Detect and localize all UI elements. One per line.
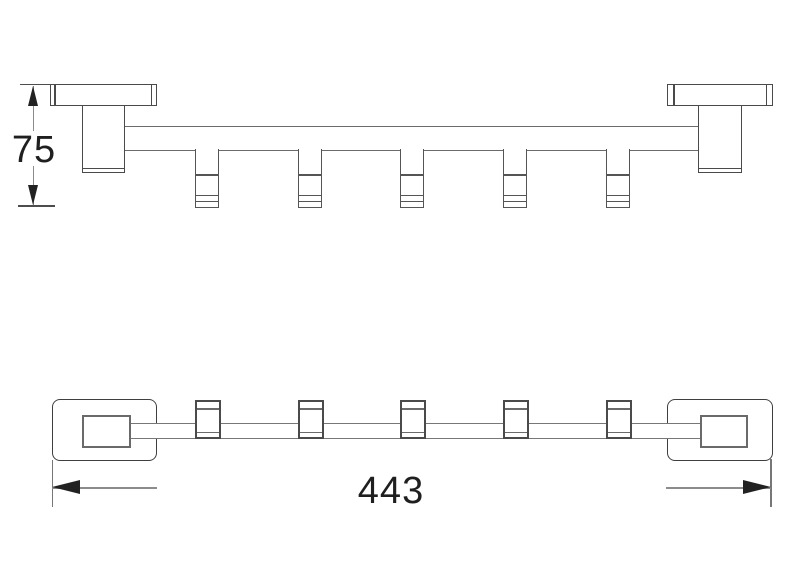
hook-plan-1 — [195, 400, 221, 439]
hook-tip-band — [607, 195, 629, 202]
hook-front-5 — [606, 149, 630, 208]
hook-tip-band — [299, 195, 321, 202]
plate-edge-line — [673, 85, 675, 105]
hook-detail-line — [608, 432, 630, 434]
hook-front-1 — [195, 149, 219, 208]
hook-tip-band — [401, 195, 423, 202]
post-base-line — [699, 168, 741, 170]
technical-drawing-sheet: 75 — [0, 0, 800, 582]
post-base-line — [83, 168, 124, 170]
arrow-up-icon — [28, 86, 38, 106]
hook-detail-line — [505, 408, 527, 410]
hook-detail-line — [300, 408, 322, 410]
hook-tip-band — [196, 195, 218, 202]
arrow-right-icon — [743, 480, 771, 494]
mount-post-left-plan — [82, 415, 131, 448]
hook-front-2 — [298, 149, 322, 208]
hook-detail-line — [402, 432, 424, 434]
mount-post-right-front — [698, 104, 742, 173]
arrow-down-icon — [28, 185, 38, 205]
hook-detail-line — [608, 408, 630, 410]
hook-detail-line — [505, 432, 527, 434]
hook-plan-2 — [298, 400, 324, 439]
hook-detail-line — [402, 408, 424, 410]
mount-post-left-front — [82, 104, 125, 173]
hook-plan-5 — [606, 400, 632, 439]
hook-detail-line — [300, 432, 322, 434]
hook-detail-line — [607, 174, 629, 176]
hook-detail-line — [299, 174, 321, 176]
plate-edge-line — [151, 85, 153, 105]
width-dimension-label: 443 — [331, 473, 451, 509]
wall-plate-left-front — [50, 84, 157, 106]
extension-line-bottom — [18, 205, 55, 207]
plate-edge-line — [766, 85, 768, 105]
hook-plan-3 — [400, 400, 426, 439]
arrow-left-icon — [52, 480, 80, 494]
plate-edge-line — [54, 85, 56, 105]
rail-front — [123, 126, 698, 151]
height-dimension-label: 75 — [6, 132, 62, 168]
hook-detail-line — [504, 174, 526, 176]
wall-plate-right-front — [667, 84, 773, 106]
hook-plan-4 — [503, 400, 529, 439]
hook-front-4 — [503, 149, 527, 208]
hook-detail-line — [401, 174, 423, 176]
hook-front-3 — [400, 149, 424, 208]
hook-detail-line — [196, 174, 218, 176]
hook-detail-line — [197, 408, 219, 410]
mount-post-right-plan — [700, 415, 748, 448]
hook-tip-band — [504, 195, 526, 202]
hook-detail-line — [197, 432, 219, 434]
